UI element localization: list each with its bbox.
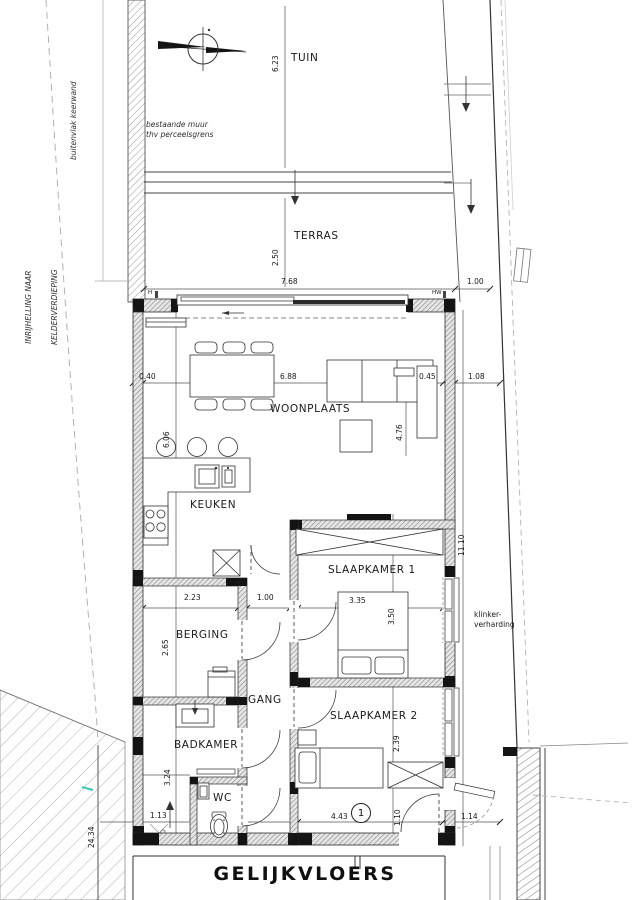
badkamer-label: BADKAMER <box>174 739 238 751</box>
dim-wc-width: 1.13 <box>150 812 167 821</box>
marker-hw: HW <box>432 290 442 296</box>
dining-table <box>190 342 274 410</box>
keuken-label: KEUKEN <box>190 499 236 511</box>
dim-108: 1.08 <box>468 373 485 382</box>
north-arrow-icon <box>158 27 246 71</box>
door-number-badge: 1 <box>351 803 371 823</box>
utility-box <box>514 248 531 282</box>
radiator <box>146 318 186 327</box>
existing-wall-note-1: bestaande muur <box>146 121 208 130</box>
bedroom1-wardrobe <box>296 529 443 555</box>
wc-label: WC <box>213 792 232 804</box>
washing-machine <box>208 667 235 697</box>
ramp-note-line2: KELDERVERDIEPING <box>51 269 60 345</box>
keerwand-note: buitenvlak keerwand <box>70 81 79 160</box>
dim-side-offset: 1.00 <box>467 278 484 287</box>
ramp-note-line1: INRIJHELLING NAAR <box>25 269 34 345</box>
dim-house-length: 11.10 <box>458 535 467 556</box>
dim-gang-width: 1.00 <box>257 594 274 603</box>
door-number: 1 <box>358 808 364 819</box>
slaapkamer2-label: SLAAPKAMER 2 <box>330 710 418 722</box>
dim-site-length: 24.34 <box>88 827 97 848</box>
coffee-table <box>340 420 372 452</box>
wc-sink <box>198 783 209 799</box>
dim-badkamer-depth: 3.24 <box>164 769 173 786</box>
duct-shaft <box>213 550 240 576</box>
ramp-note: INRIJHELLING NAAR KELDERVERDIEPING <box>8 269 68 345</box>
garden-fence-line <box>443 0 460 302</box>
slope-arrow-top <box>462 76 470 112</box>
party-wall <box>517 748 540 900</box>
dim-front-width: 7.68 <box>281 278 298 287</box>
dim-entry-side: 1.14 <box>461 813 478 822</box>
dim-berging-depth: 2.65 <box>162 639 171 656</box>
marker-hw-flag <box>443 291 446 298</box>
dim-entry-depth: 1.10 <box>394 809 403 826</box>
slaapkamer1-label: SLAAPKAMER 1 <box>328 564 416 576</box>
dim-keuken-length: 6.06 <box>163 431 172 448</box>
front-door <box>401 794 439 832</box>
boundary-offset-dashed <box>501 0 529 742</box>
dim-bed1-width: 3.35 <box>349 597 366 606</box>
marker-h: H <box>148 290 152 296</box>
dim-berging-width: 2.23 <box>184 594 201 603</box>
terras-label: TERRAS <box>294 230 339 242</box>
dim-inner-width: 6.88 <box>280 373 297 382</box>
tuin-label: TUIN <box>291 52 318 64</box>
dim-living-depth: 4.76 <box>396 424 405 441</box>
bath-sink <box>176 700 214 727</box>
paving-note-2: verharding <box>474 621 515 630</box>
woonplaats-label: WOONPLAATS <box>270 403 350 415</box>
dim-bed1-depth: 3.50 <box>388 608 397 625</box>
floorplan-sheet: TUIN 6.23 bestaande muur thv perceelsgre… <box>0 0 636 900</box>
floorplan-drawing <box>0 0 636 900</box>
bedroom1-window <box>442 577 459 643</box>
dim-bed2-depth: 2.39 <box>393 735 402 752</box>
toilet <box>211 812 228 838</box>
sliding-door <box>177 295 408 315</box>
sheet-title: GELIJKVLOERS <box>150 864 460 886</box>
dim-entry-width: 4.43 <box>331 813 348 822</box>
paving-note-1: klinker- <box>474 611 501 620</box>
dim-040: 0.40 <box>139 373 156 382</box>
bedroom2-bed <box>295 730 383 788</box>
kitchen-counter <box>143 438 250 546</box>
existing-boundary-wall <box>128 0 145 302</box>
plot-boundary-line <box>490 0 517 748</box>
bedroom2-window <box>442 687 459 757</box>
slope-arrow-mid <box>444 179 475 214</box>
berging-label: BERGING <box>176 629 229 641</box>
dim-tuin-depth: 6.23 <box>272 55 281 72</box>
existing-wall-note-2: thv perceelsgrens <box>146 131 213 140</box>
dim-terras-depth: 2.50 <box>272 249 281 266</box>
bedroom2-wardrobe <box>388 762 443 788</box>
gang-label: GANG <box>248 694 282 706</box>
marker-h-flag <box>155 291 158 298</box>
dim-045: 0.45 <box>419 373 436 382</box>
slope-arrow-terras <box>291 170 299 205</box>
ramp-hatch-area <box>0 690 125 900</box>
